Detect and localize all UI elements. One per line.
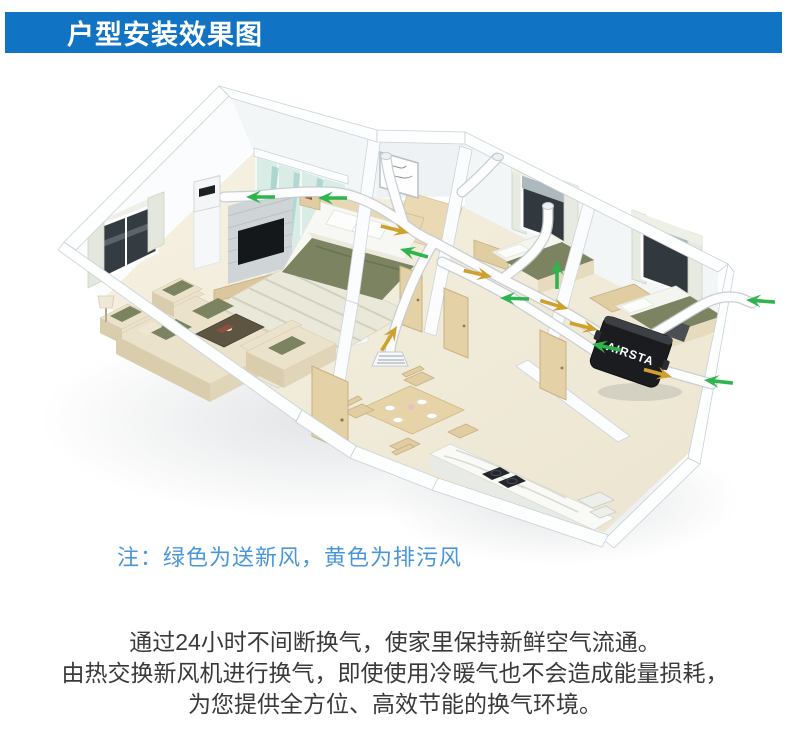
description-line: 通过24小时不间断换气，使家里保持新鲜空气流通。 [0,627,790,658]
door [540,330,566,400]
description-line: 为您提供全方位、高效节能的换气环境。 [0,689,790,720]
door [444,288,468,358]
supply-vent [194,176,220,212]
floor-plan-illustration: AIRSTA [0,0,790,610]
product-detail-page: 户型安装效果图 [0,0,790,756]
description-text: 通过24小时不间断换气，使家里保持新鲜空气流通。 由热交换新风机进行换气，即使使… [0,627,790,720]
ceiling-diffuser [372,352,408,366]
legend-note: 注：绿色为送新风，黄色为排污风 [117,540,462,572]
description-line: 由热交换新风机进行换气，即使使用冷暖气也不会造成能量损耗， [0,658,790,689]
